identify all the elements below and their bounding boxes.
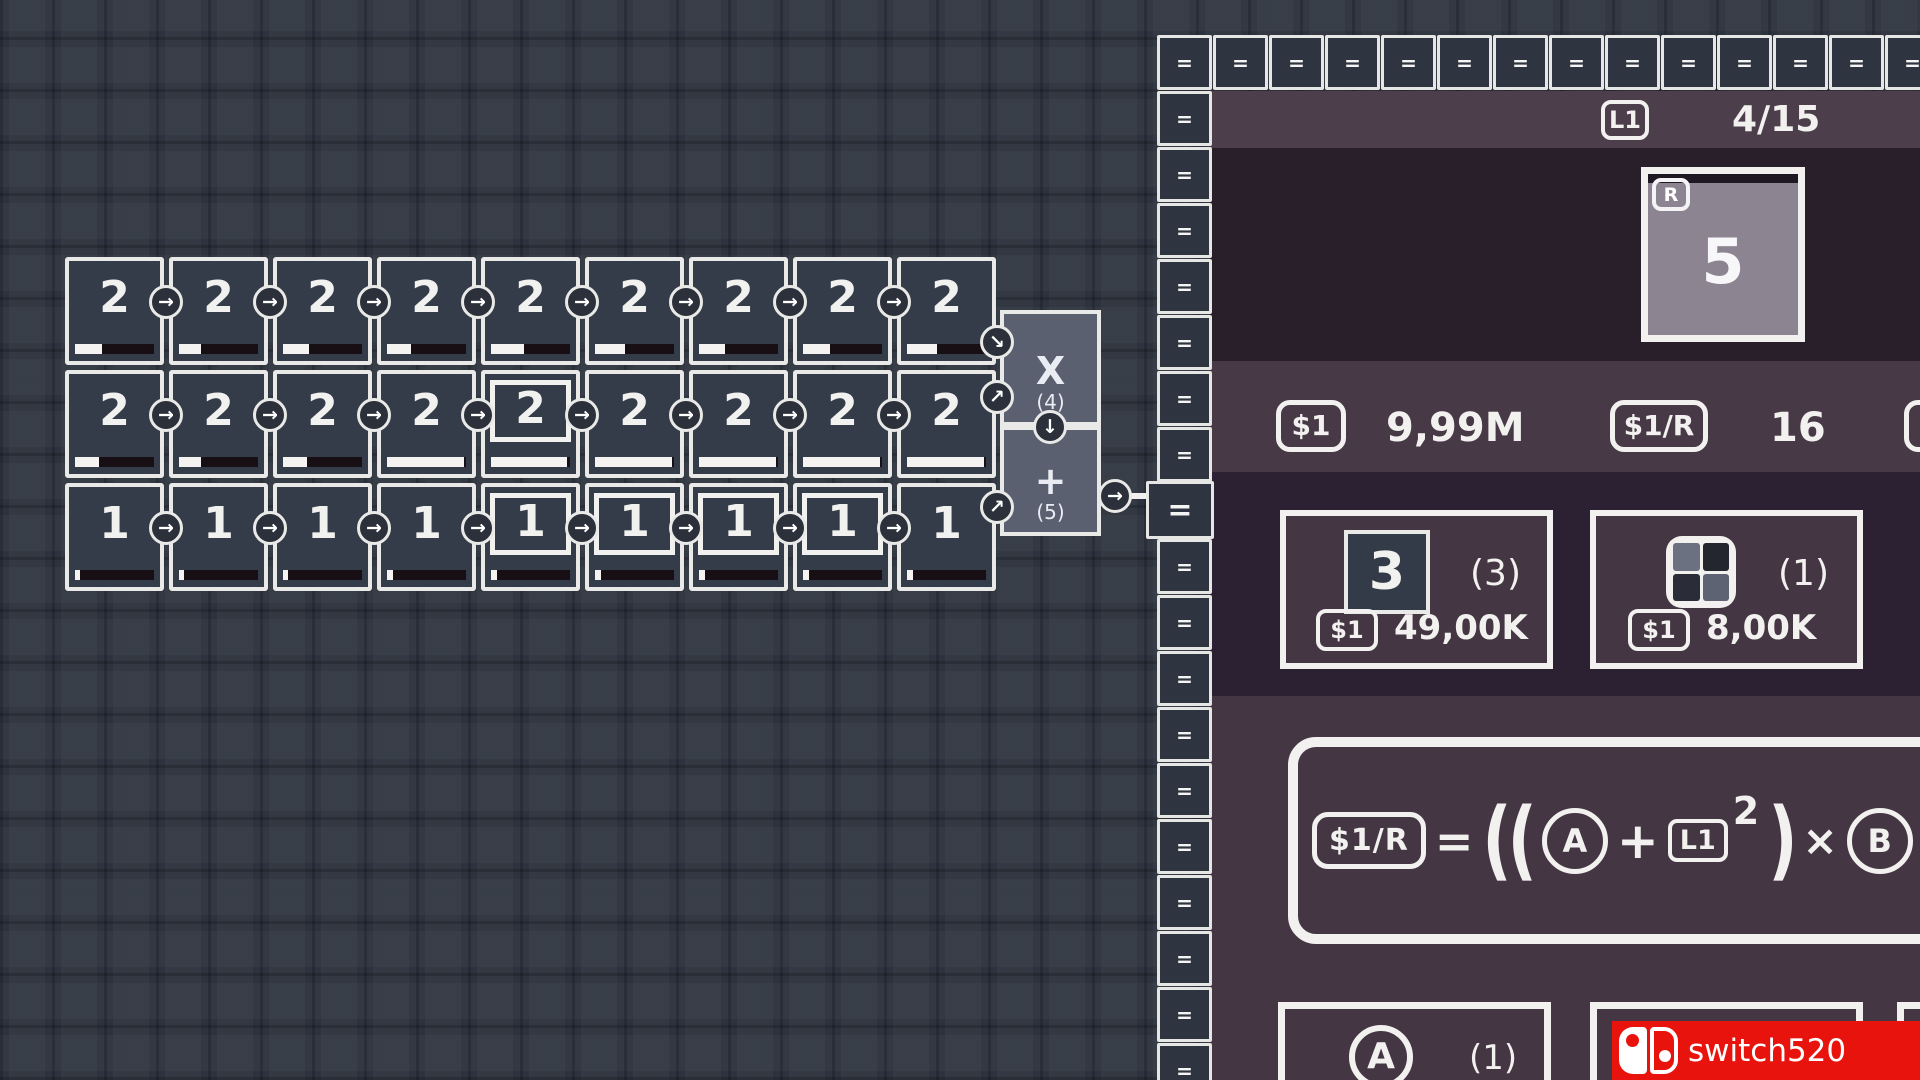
- tile-progress-bar: [179, 457, 258, 467]
- arrow-down-icon: ↓: [1033, 410, 1067, 444]
- arrow-right-icon: →: [253, 285, 287, 319]
- tile-value: 2: [515, 276, 546, 320]
- grid-tile[interactable]: 2: [377, 370, 476, 478]
- tile-progress-bar: [491, 457, 570, 467]
- border-cell: =: [1549, 35, 1604, 90]
- row-output-arrow-icon: ↘: [980, 325, 1014, 359]
- tile-value-selected: 1: [594, 493, 675, 555]
- row-output-arrow-icon: ↗: [980, 490, 1014, 524]
- arrow-right-icon: →: [149, 285, 183, 319]
- formula-b-icon: B: [1847, 808, 1913, 874]
- grid-tile[interactable]: 2: [481, 257, 580, 365]
- border-cell: =: [1157, 371, 1212, 426]
- arrow-right-icon: →: [669, 398, 703, 432]
- grid-tile[interactable]: 2: [897, 370, 996, 478]
- border-cell: =: [1157, 35, 1212, 90]
- border-cell: =: [1157, 707, 1212, 762]
- border-cell: =: [1157, 763, 1212, 818]
- switch-logo-icon: [1612, 1021, 1682, 1080]
- border-cell: =: [1157, 987, 1212, 1042]
- border-cell: =: [1157, 203, 1212, 258]
- tile-progress-bar: [283, 570, 362, 580]
- shop-grid-price-badge: $1: [1628, 609, 1690, 651]
- tile-progress-bar: [699, 570, 778, 580]
- reward-tile: R 5: [1641, 167, 1805, 342]
- border-cell: =: [1157, 595, 1212, 650]
- tile-progress-bar: [907, 570, 986, 580]
- grid-tile[interactable]: 2: [689, 370, 788, 478]
- border-cell: =: [1157, 91, 1212, 146]
- grid-tile[interactable]: 2: [793, 370, 892, 478]
- tile-value: 1: [99, 502, 130, 546]
- grid-tile[interactable]: 1: [65, 483, 164, 591]
- border-cell: =: [1157, 1043, 1212, 1080]
- tile-progress-bar: [283, 344, 362, 354]
- arrow-right-icon: →: [253, 398, 287, 432]
- arrow-right-icon: →: [669, 285, 703, 319]
- tile-progress-bar: [907, 457, 986, 467]
- tile-progress-bar: [387, 570, 466, 580]
- border-cell: =: [1269, 35, 1324, 90]
- border-cell: =: [1157, 427, 1212, 482]
- multiply-processor[interactable]: X (4): [1000, 310, 1101, 426]
- grid-tile[interactable]: 2: [65, 370, 164, 478]
- border-cell: =: [1157, 539, 1212, 594]
- tile-value: 2: [411, 276, 442, 320]
- border-cell: =: [1717, 35, 1772, 90]
- arrow-right-icon: →: [357, 285, 391, 319]
- tile-progress-bar: [803, 457, 882, 467]
- border-cell: =: [1157, 651, 1212, 706]
- add-symbol: +: [1035, 462, 1067, 500]
- tile-value: 1: [931, 502, 962, 546]
- shop-grid-owned: (1): [1778, 556, 1829, 592]
- formula-exponent: 2: [1733, 789, 1759, 833]
- border-cell: =: [1885, 35, 1920, 90]
- grid-tile[interactable]: 1: [585, 483, 684, 591]
- border-cell: =: [1157, 259, 1212, 314]
- tile-value: 2: [723, 389, 754, 433]
- grid-tile[interactable]: 2: [585, 257, 684, 365]
- tile-progress-bar: [803, 570, 882, 580]
- tile-progress-bar: [595, 344, 674, 354]
- formula-equals: =: [1435, 814, 1474, 868]
- grid-tile[interactable]: 2: [169, 370, 268, 478]
- slot-a-icon: A: [1349, 1025, 1413, 1080]
- formula-times: ×: [1802, 816, 1837, 865]
- formula-close-paren: ): [1768, 797, 1793, 883]
- grid-tile[interactable]: 2: [169, 257, 268, 365]
- tile-progress-bar: [75, 570, 154, 580]
- grid-tile[interactable]: 1: [377, 483, 476, 591]
- money-value: 9,99M: [1386, 408, 1525, 448]
- tile-progress-bar: [803, 344, 882, 354]
- arrow-right-icon: →: [669, 511, 703, 545]
- tile-value-selected: 1: [698, 493, 779, 555]
- grid-tile[interactable]: 2: [793, 257, 892, 365]
- arrow-right-icon: →: [461, 398, 495, 432]
- partial-badge: [1904, 400, 1920, 452]
- grid-tile[interactable]: 1: [273, 483, 372, 591]
- money-per-run-badge: $1/R: [1610, 400, 1708, 452]
- arrow-right-icon: →: [461, 511, 495, 545]
- grid-tile[interactable]: 2: [481, 370, 580, 478]
- tile-progress-bar: [179, 570, 258, 580]
- shop-tile3-owned: (3): [1470, 556, 1521, 592]
- tile-progress-bar: [491, 344, 570, 354]
- grid-tile[interactable]: 2: [585, 370, 684, 478]
- tile-value: 2: [99, 276, 130, 320]
- watermark-text: switch520: [1688, 1033, 1846, 1069]
- slot-a-count: (1): [1469, 1041, 1517, 1075]
- border-cell: =: [1157, 315, 1212, 370]
- border-cell-connector: =: [1146, 481, 1214, 539]
- tile-progress-bar: [179, 344, 258, 354]
- border-cell: =: [1157, 147, 1212, 202]
- tile-progress-bar: [699, 344, 778, 354]
- arrow-right-icon: →: [773, 398, 807, 432]
- tile-value: 2: [931, 276, 962, 320]
- tile-progress-bar: [907, 344, 986, 354]
- formula-box: $1/R = (( A + L1 2 ) × B ): [1288, 737, 1920, 944]
- border-cell: =: [1157, 819, 1212, 874]
- shop-item-grid[interactable]: (1) $1 8,00K: [1590, 510, 1863, 669]
- tile-progress-bar: [75, 457, 154, 467]
- level-progress: 4/15: [1732, 102, 1820, 138]
- tile-value: 2: [99, 389, 130, 433]
- arrow-right-icon: →: [773, 511, 807, 545]
- game-screen: 2→2→2→2→2→2→2→2→22→2→2→2→2→2→2→2→21→1→1→…: [0, 0, 1920, 1080]
- grid-tile[interactable]: 2: [65, 257, 164, 365]
- multiply-symbol: X: [1036, 352, 1065, 390]
- tile-progress-bar: [699, 457, 778, 467]
- border-cell: =: [1829, 35, 1884, 90]
- row-output-arrow-icon: ↗: [980, 380, 1014, 414]
- tile-value: 2: [307, 389, 338, 433]
- grid-tile[interactable]: 1: [481, 483, 580, 591]
- panel-reward-section: [1210, 148, 1920, 361]
- grid-tile[interactable]: 2: [689, 257, 788, 365]
- tile-value: 2: [619, 389, 650, 433]
- border-cell: =: [1661, 35, 1716, 90]
- shop-tile3-price-badge: $1: [1316, 609, 1378, 651]
- grid-tile[interactable]: 1: [793, 483, 892, 591]
- formula-result-badge: $1/R: [1312, 812, 1426, 869]
- shop-grid-price: 8,00K: [1706, 611, 1816, 645]
- grid-tile[interactable]: 2: [377, 257, 476, 365]
- tile-value: 2: [411, 389, 442, 433]
- add-count: (5): [1036, 500, 1064, 524]
- arrow-right-icon: →: [877, 511, 911, 545]
- shop-tile3-price: 49,00K: [1394, 611, 1528, 645]
- arrow-right-icon: →: [253, 511, 287, 545]
- tile-progress-bar: [387, 344, 466, 354]
- formula-a-icon: A: [1542, 808, 1608, 874]
- tile-value-selected: 1: [802, 493, 883, 555]
- arrow-right-icon: →: [149, 398, 183, 432]
- tile-value: 2: [307, 276, 338, 320]
- border-cell: =: [1493, 35, 1548, 90]
- tile-progress-bar: [283, 457, 362, 467]
- formula-open-parens: ((: [1482, 797, 1533, 883]
- arrow-right-icon: →: [565, 398, 599, 432]
- slot-a-box[interactable]: A (1): [1278, 1002, 1551, 1080]
- tile-value: 2: [619, 276, 650, 320]
- tile-value: 2: [827, 276, 858, 320]
- arrow-right-icon: →: [565, 511, 599, 545]
- tile-value-selected: 1: [490, 493, 571, 555]
- shop-item-tile3[interactable]: 3 (3) $1 49,00K: [1280, 510, 1553, 669]
- border-cell: =: [1437, 35, 1492, 90]
- tile-progress-bar: [387, 457, 466, 467]
- border-cell: =: [1605, 35, 1660, 90]
- grid-tile[interactable]: 1: [169, 483, 268, 591]
- tile-value: 1: [411, 502, 442, 546]
- money-per-run-value: 16: [1770, 408, 1826, 448]
- arrow-right-icon: →: [565, 285, 599, 319]
- level-badge: L1: [1601, 100, 1649, 140]
- arrow-right-icon: →: [357, 511, 391, 545]
- tile-value: 2: [203, 389, 234, 433]
- tile-value: 2: [827, 389, 858, 433]
- grid-tile[interactable]: 2: [273, 257, 372, 365]
- formula-plus: +: [1617, 816, 1659, 866]
- tile-progress-bar: [595, 457, 674, 467]
- border-cell: =: [1773, 35, 1828, 90]
- arrow-right-icon: →: [877, 398, 911, 432]
- reward-value: 5: [1648, 188, 1798, 335]
- border-cell: =: [1381, 35, 1436, 90]
- grid-tile[interactable]: 1: [689, 483, 788, 591]
- shop-tile3-icon: 3: [1344, 530, 1430, 614]
- border-cell: =: [1157, 875, 1212, 930]
- tile-progress-bar: [75, 344, 154, 354]
- border-cell: =: [1213, 35, 1268, 90]
- arrow-right-icon: →: [149, 511, 183, 545]
- border-cell: =: [1325, 35, 1380, 90]
- tile-value-selected: 2: [490, 380, 571, 442]
- arrow-right-icon: →: [357, 398, 391, 432]
- arrow-right-icon: →: [461, 285, 495, 319]
- arrow-right-output-icon: →: [1098, 479, 1132, 513]
- tile-value: 1: [203, 502, 234, 546]
- tile-progress-bar: [595, 570, 674, 580]
- tile-progress-bar: [491, 570, 570, 580]
- border-cell: =: [1157, 931, 1212, 986]
- watermark: switch520: [1612, 1021, 1920, 1080]
- tile-value: 2: [723, 276, 754, 320]
- tile-value: 1: [307, 502, 338, 546]
- money-badge: $1: [1276, 400, 1346, 452]
- arrow-right-icon: →: [773, 285, 807, 319]
- grid-tile[interactable]: 2: [273, 370, 372, 478]
- grid-2x2-icon: [1666, 536, 1736, 608]
- formula-l1-badge: L1: [1668, 819, 1728, 862]
- arrow-right-icon: →: [877, 285, 911, 319]
- tile-value: 2: [203, 276, 234, 320]
- tile-value: 2: [931, 389, 962, 433]
